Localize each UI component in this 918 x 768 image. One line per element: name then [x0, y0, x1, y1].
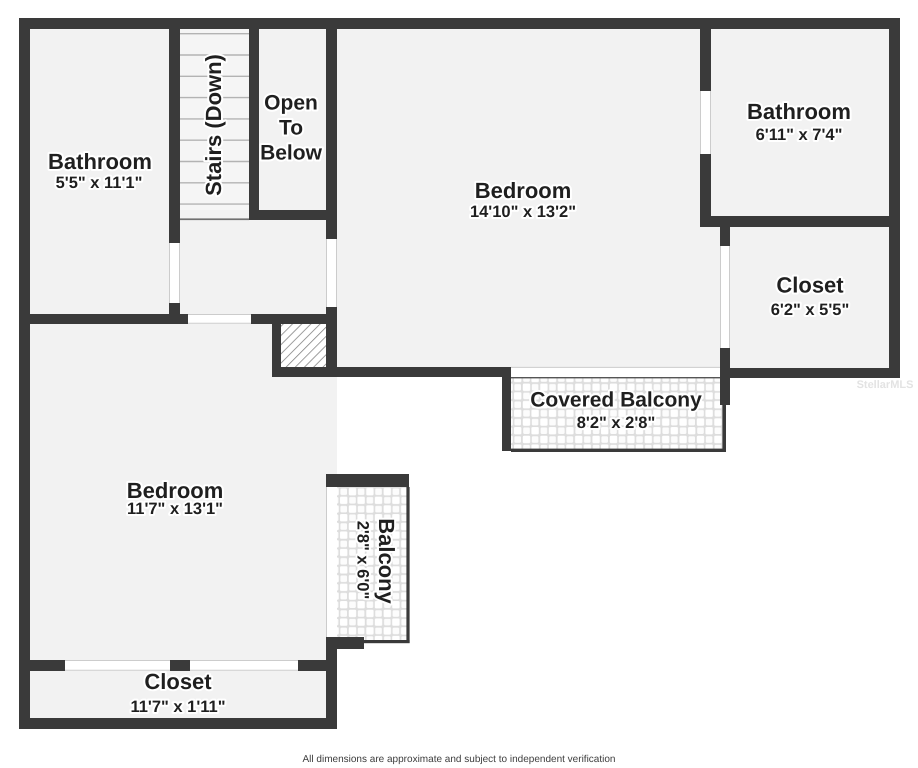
svg-text:14'10" x 13'2": 14'10" x 13'2" — [470, 203, 576, 221]
svg-text:To: To — [279, 117, 303, 140]
svg-text:11'7" x 1'11": 11'7" x 1'11" — [130, 698, 225, 716]
svg-text:Below: Below — [260, 142, 323, 165]
svg-text:Bathroom: Bathroom — [48, 149, 152, 174]
svg-text:11'7" x 13'1": 11'7" x 13'1" — [127, 500, 223, 518]
svg-text:6'11" x 7'4": 6'11" x 7'4" — [756, 126, 843, 144]
svg-text:8'2" x 2'8": 8'2" x 2'8" — [577, 414, 656, 432]
svg-text:Covered Balcony: Covered Balcony — [530, 389, 702, 412]
svg-text:StellarMLS: StellarMLS — [857, 379, 914, 391]
svg-text:6'2" x 5'5": 6'2" x 5'5" — [771, 301, 850, 319]
svg-text:2'8" x 6'0": 2'8" x 6'0" — [354, 521, 372, 600]
svg-text:Open: Open — [264, 92, 318, 115]
svg-text:Balcony: Balcony — [374, 518, 399, 604]
svg-text:Closet: Closet — [776, 273, 844, 298]
svg-text:Stairs (Down): Stairs (Down) — [201, 54, 226, 196]
svg-text:Closet: Closet — [144, 669, 212, 694]
svg-text:Bathroom: Bathroom — [747, 99, 851, 124]
svg-text:5'5" x 11'1": 5'5" x 11'1" — [56, 174, 143, 192]
svg-text:Bedroom: Bedroom — [475, 178, 572, 203]
svg-text:All dimensions are approximate: All dimensions are approximate and subje… — [303, 754, 616, 765]
